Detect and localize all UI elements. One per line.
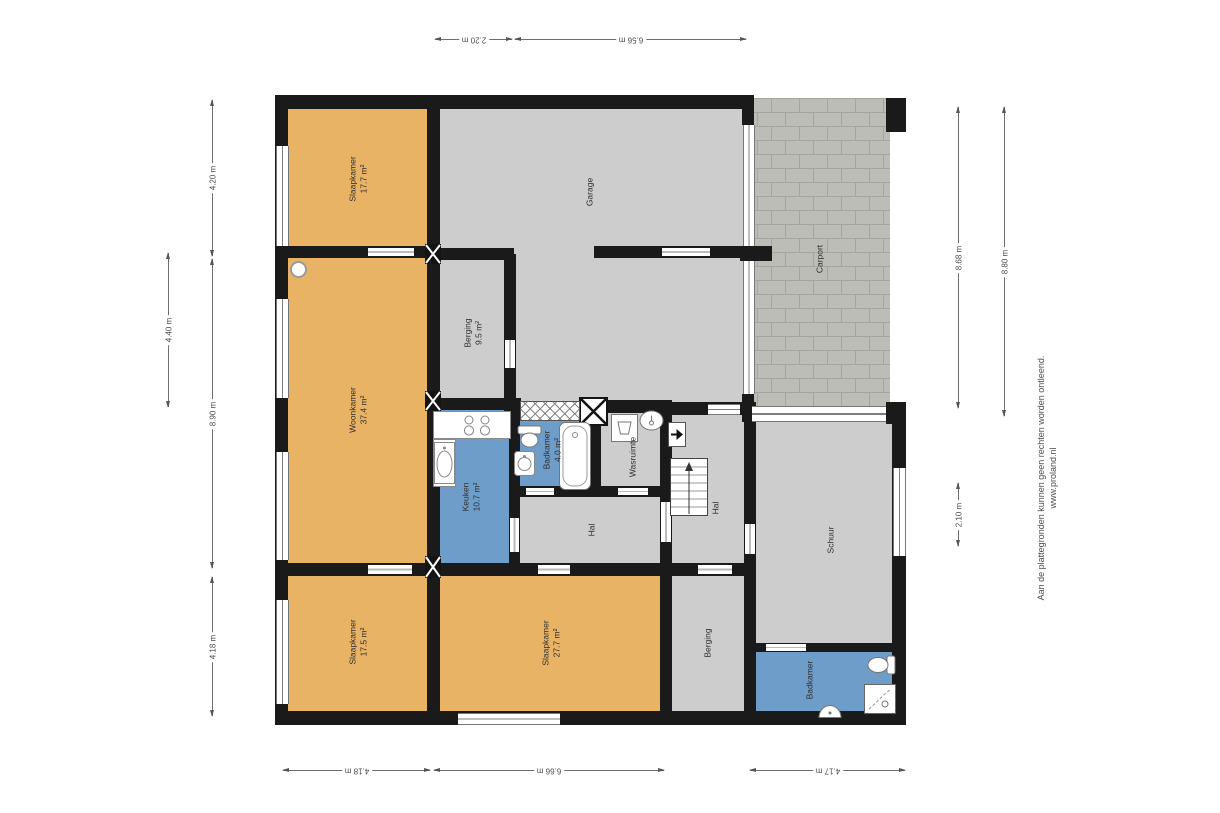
floorplan-page: Slaapkamer17.7 m² Woonkamer37.4 m² Slaap…: [0, 0, 1220, 813]
door-hal2-schuur: [745, 524, 755, 554]
kitchen-sink-icon: [434, 442, 455, 484]
room-schuur: Schuur: [748, 408, 896, 648]
room-berging-1-label: Berging9.5 m²: [462, 318, 483, 347]
wall-bottom: [275, 711, 906, 725]
window-garage-carport-2: [743, 261, 755, 394]
room-berging-2-label: Berging: [703, 628, 714, 657]
window-slaapkamer2: [276, 600, 289, 704]
room-berging-2: Berging: [666, 570, 750, 715]
wall-berging-top: [432, 248, 514, 260]
glass-lattice-panel: [520, 401, 580, 421]
room-schuur-label: Schuur: [826, 527, 837, 554]
sink-icon-badkamer1: [514, 451, 535, 476]
toilet-icon-badkamer1: [517, 425, 542, 448]
wall-schuur-left: [744, 402, 756, 714]
wall-hal-vertical: [660, 400, 672, 714]
wall-top: [275, 95, 754, 109]
dimension-left-outer-1: 4.20 m: [212, 100, 213, 256]
dimension-bottom-3: 4.17 m: [750, 770, 905, 771]
room-badkamer-2-label: Badkamer: [805, 661, 816, 700]
watermark-line-2: www.proland.nl: [1047, 318, 1059, 638]
door-hal1-slaapkamer3: [538, 565, 570, 574]
door-berging1: [505, 340, 515, 368]
door-badkamer1: [526, 488, 554, 495]
window-carport-schuur: [752, 406, 886, 422]
passage-marker-icon-2: [425, 391, 441, 411]
room-slaapkamer-1: Slaapkamer17.7 m²: [287, 108, 428, 250]
wall-berging-right: [504, 254, 516, 412]
wall-right: [892, 406, 906, 725]
room-woonkamer-label: Woonkamer37.4 m²: [347, 387, 368, 433]
bathtub-icon: [559, 422, 591, 490]
wall-carport-corner-tr: [886, 98, 906, 132]
passage-marker-icon-3: [425, 556, 441, 578]
door-wasruimte: [618, 488, 648, 495]
window-hal2-top: [708, 404, 740, 415]
dimension-right-outer-1: 8.80 m: [1004, 107, 1005, 416]
wall-carport-corner-br: [886, 402, 906, 424]
room-slaapkamer-3: Slaapkamer27.7 m²: [438, 572, 664, 713]
toilet-icon-badkamer2: [866, 655, 896, 675]
dimension-bottom-2: 6.66 m: [434, 770, 664, 771]
watermark-line-1: Aan de plattegronden kunnen geen rechten…: [1035, 318, 1047, 638]
wall-keuken-top: [427, 398, 521, 410]
room-hal-2-label: Hal: [711, 502, 722, 515]
room-keuken-label: Keuken10.7 m²: [460, 483, 481, 512]
sink-icon-badkamer2: [818, 704, 842, 718]
door-woonkamer-slaapkamer2: [368, 565, 412, 574]
room-wasruimte-label: Wasruimte: [628, 437, 639, 477]
dimension-left-outer-3: 4.18 m: [212, 577, 213, 716]
door-hal2-berging2: [698, 565, 732, 574]
wall-garage-carport-mid: [740, 246, 772, 261]
dimension-left-inner-1: 4.40 m: [168, 253, 169, 407]
room-hal-1: Hal: [518, 490, 666, 570]
room-carport-label: Carport: [815, 245, 826, 273]
dimension-left-outer-2: 8.90 m: [212, 259, 213, 568]
room-slaapkamer-2-label: Slaapkamer17.5 m²: [347, 619, 368, 664]
passage-marker-icon-1: [425, 244, 441, 264]
stove-icon: [459, 413, 496, 437]
entrance-arrow-icon: [668, 422, 686, 447]
room-berging-1: Berging9.5 m²: [440, 261, 506, 405]
window-woonkamer-1: [276, 299, 289, 398]
watermark-disclaimer: Aan de plattegronden kunnen geen rechten…: [1035, 318, 1059, 638]
wall-garage-carport-top: [742, 95, 754, 125]
dimension-right-inner-2: 2.10 m: [958, 483, 959, 546]
window-slaapkamer1: [276, 146, 289, 246]
door-badkamer2: [766, 644, 806, 651]
dimension-top-1: 2.20 m: [435, 39, 512, 40]
door-keuken-hal1: [510, 518, 519, 552]
boiler-icon: [639, 410, 664, 431]
window-garage-carport-1: [743, 125, 755, 246]
staircase-icon: [670, 458, 708, 516]
door-garage-mid: [662, 248, 710, 256]
dimension-top-2: 6.56 m: [515, 39, 746, 40]
dimension-right-inner-1: 8.68 m: [958, 107, 959, 408]
window-woonkamer-2: [276, 452, 289, 560]
door-slaapkamer1-woonkamer: [368, 248, 414, 256]
flue-circle-icon: [290, 261, 307, 278]
room-badkamer-1-label: Badkamer4.0 m²: [541, 431, 562, 470]
window-slaapkamer3: [458, 713, 560, 725]
room-slaapkamer-1-label: Slaapkamer17.7 m²: [347, 156, 368, 201]
window-schuur: [893, 468, 906, 556]
room-slaapkamer-3-label: Slaapkamer27.7 m²: [540, 620, 561, 665]
room-woonkamer: Woonkamer37.4 m²: [287, 250, 428, 570]
room-slaapkamer-2: Slaapkamer17.5 m²: [287, 570, 428, 713]
room-garage-label: Garage: [585, 178, 596, 206]
shower-icon: [864, 684, 896, 714]
room-hal-1-label: Hal: [587, 524, 598, 537]
dimension-bottom-1: 4.18 m: [283, 770, 430, 771]
